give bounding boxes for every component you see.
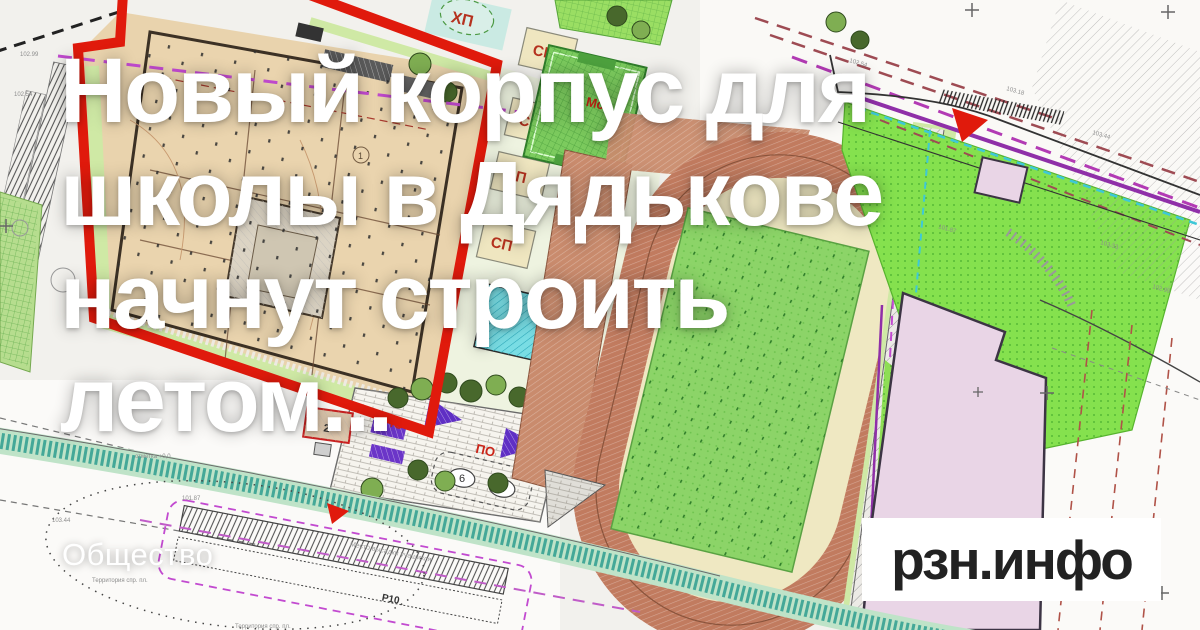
territory-note-2: Территория спр. пл.	[235, 624, 291, 630]
svg-text:102.54: 102.54	[14, 92, 33, 98]
svg-text:102.99: 102.99	[20, 52, 39, 58]
title-line-1: Новый корпус для	[60, 40, 1160, 143]
territory-note-1: Территория спр. пл.	[92, 578, 148, 584]
brand-logo-box: рзн.инфо	[862, 518, 1161, 601]
svg-text:103.44: 103.44	[52, 518, 71, 524]
svg-text:101.87: 101.87	[182, 496, 201, 502]
title-line-4: летом...	[60, 349, 1160, 452]
title-line-2: школы в Дядькове	[60, 143, 1160, 246]
article-title: Новый корпус для школы в Дядькове начнут…	[60, 40, 1160, 452]
brand-logo-text: рзн.инфо	[891, 528, 1132, 592]
category-label: Общество	[62, 537, 213, 573]
mark-note: отметка +0,0	[135, 454, 171, 460]
title-line-3: начнут строить	[60, 246, 1160, 349]
og-preview-card: 1 ХП СП СП СП СП Мс	[0, 0, 1200, 630]
zone-6-label: 6	[459, 473, 465, 485]
